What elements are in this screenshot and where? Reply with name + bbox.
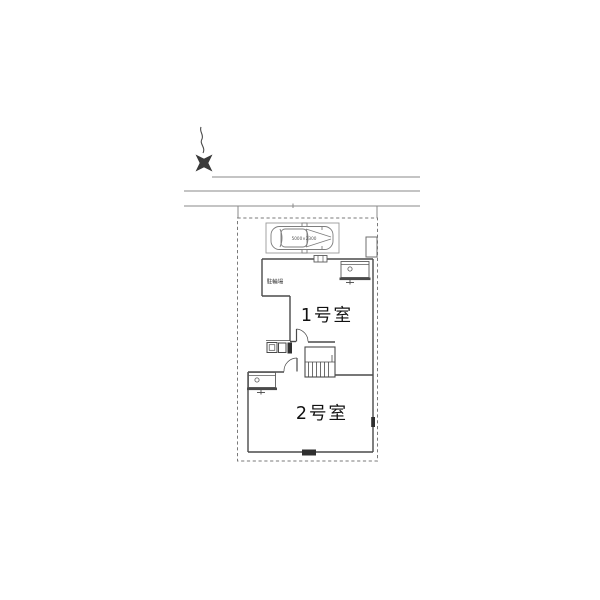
floorplan-canvas: 5000×2300 bbox=[0, 0, 600, 600]
staircase bbox=[305, 347, 335, 377]
kitchen-unit-room1 bbox=[340, 262, 371, 285]
room1-label: 1号室 bbox=[301, 306, 353, 326]
north-arrow-icon bbox=[196, 127, 212, 171]
bike-parking-label: 駐輪場 bbox=[267, 278, 284, 286]
site-plan-drawing: 5000×2300 bbox=[0, 0, 600, 600]
property-boundary bbox=[238, 218, 378, 461]
road-lines bbox=[184, 177, 420, 218]
entrance-door-room1 bbox=[297, 329, 309, 342]
wall-vent bbox=[314, 256, 327, 263]
gate-marker bbox=[302, 450, 316, 456]
wall-marker bbox=[371, 417, 375, 427]
car-dimension-label: 5000×2300 bbox=[292, 236, 317, 241]
kitchen-unit-room2 bbox=[247, 373, 277, 395]
room2-label: 2号室 bbox=[296, 404, 348, 424]
meter-box bbox=[366, 237, 377, 257]
utility-boxes bbox=[267, 343, 292, 354]
parking-stall: 5000×2300 bbox=[266, 223, 339, 253]
entrance-door-room2 bbox=[284, 358, 297, 372]
